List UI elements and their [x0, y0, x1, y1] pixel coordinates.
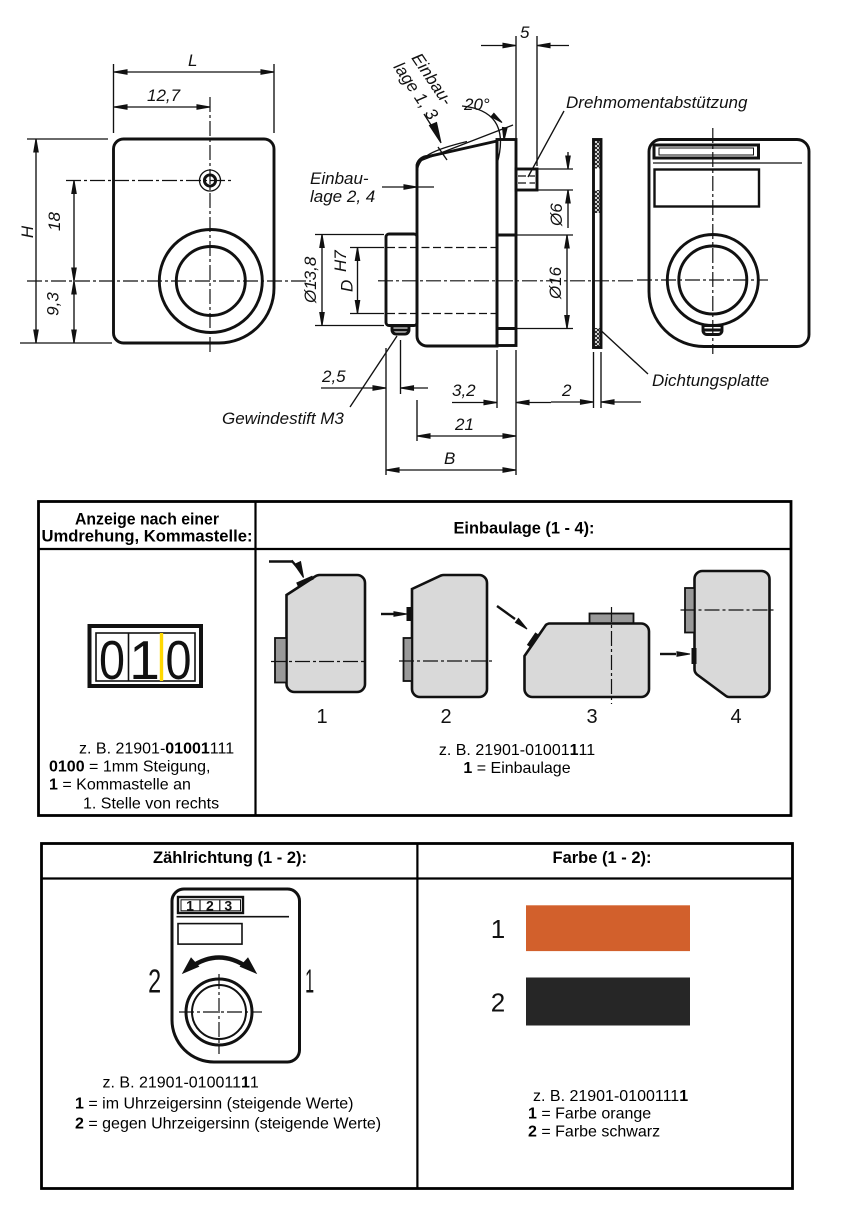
svg-text:L: L — [188, 51, 197, 70]
svg-text:2 = gegen Uhrzeigersinn (steig: 2 = gegen Uhrzeigersinn (steigende Werte… — [75, 1116, 381, 1133]
svg-text:Gewindestift M3: Gewindestift M3 — [222, 409, 344, 428]
svg-text:1 = Einbaulage: 1 = Einbaulage — [463, 760, 570, 777]
svg-text:1: 1 — [305, 963, 314, 1000]
svg-text:3: 3 — [224, 897, 232, 913]
svg-text:0100 = 1mm Steigung,: 0100 = 1mm Steigung, — [49, 759, 210, 776]
svg-text:2 = Farbe schwarz: 2 = Farbe schwarz — [528, 1124, 660, 1141]
svg-text:z. B. 21901-01001111: z. B. 21901-01001111 — [533, 1088, 688, 1105]
svg-text:1: 1 — [129, 629, 160, 691]
svg-text:Drehmomentabstützung: Drehmomentabstützung — [566, 93, 748, 112]
svg-text:z. B. 21901-01001111: z. B. 21901-01001111 — [439, 742, 595, 759]
svg-text:Ø16: Ø16 — [546, 266, 565, 300]
svg-text:2: 2 — [148, 963, 161, 1000]
svg-text:3,2: 3,2 — [452, 381, 476, 400]
svg-text:4: 4 — [730, 706, 741, 728]
svg-text:18: 18 — [45, 212, 64, 231]
svg-text:Zählrichtung (1 - 2):: Zählrichtung (1 - 2): — [153, 849, 307, 867]
svg-text:Anzeige nach einer: Anzeige nach einer — [75, 511, 220, 529]
svg-text:1. Stelle von rechts: 1. Stelle von rechts — [83, 796, 219, 813]
svg-text:2: 2 — [561, 381, 572, 400]
svg-text:1 = Farbe orange: 1 = Farbe orange — [528, 1106, 651, 1123]
svg-text:1: 1 — [316, 706, 327, 728]
svg-text:Dichtungsplatte: Dichtungsplatte — [652, 371, 769, 390]
svg-text:Ø13,8: Ø13,8 — [301, 256, 320, 304]
svg-text:z. B. 21901-01001111: z. B. 21901-01001111 — [79, 741, 234, 758]
svg-text:5: 5 — [520, 23, 530, 42]
svg-text:20°: 20° — [463, 95, 490, 114]
svg-text:0: 0 — [99, 629, 125, 691]
svg-text:lage 2, 4: lage 2, 4 — [310, 187, 375, 206]
svg-text:1 = Kommastelle an: 1 = Kommastelle an — [49, 777, 191, 794]
svg-text:H7: H7 — [331, 250, 350, 272]
svg-text:z. B. 21901-01001111: z. B. 21901-01001111 — [103, 1075, 259, 1092]
svg-text:0: 0 — [166, 629, 192, 691]
svg-text:Ø6: Ø6 — [547, 203, 566, 227]
svg-text:Einbaulage (1 - 4):: Einbaulage (1 - 4): — [454, 520, 595, 538]
svg-text:12,7: 12,7 — [147, 86, 181, 105]
svg-text:B: B — [444, 449, 455, 468]
svg-text:D: D — [338, 280, 357, 292]
svg-text:2: 2 — [440, 706, 451, 728]
svg-text:Einbau-: Einbau- — [310, 169, 369, 188]
svg-text:2: 2 — [206, 897, 214, 913]
svg-text:Farbe (1 - 2):: Farbe (1 - 2): — [553, 849, 652, 867]
svg-text:9,3: 9,3 — [44, 292, 63, 316]
svg-text:2,5: 2,5 — [321, 367, 346, 386]
svg-text:3: 3 — [586, 706, 597, 728]
svg-text:1 = im Uhrzeigersinn (steigend: 1 = im Uhrzeigersinn (steigende Werte) — [75, 1096, 354, 1113]
svg-text:1: 1 — [186, 897, 194, 913]
svg-text:21: 21 — [454, 415, 474, 434]
svg-text:2: 2 — [491, 988, 505, 1018]
svg-text:Umdrehung, Kommastelle:: Umdrehung, Kommastelle: — [42, 528, 253, 546]
svg-text:H: H — [18, 225, 37, 238]
svg-text:1: 1 — [491, 914, 505, 944]
